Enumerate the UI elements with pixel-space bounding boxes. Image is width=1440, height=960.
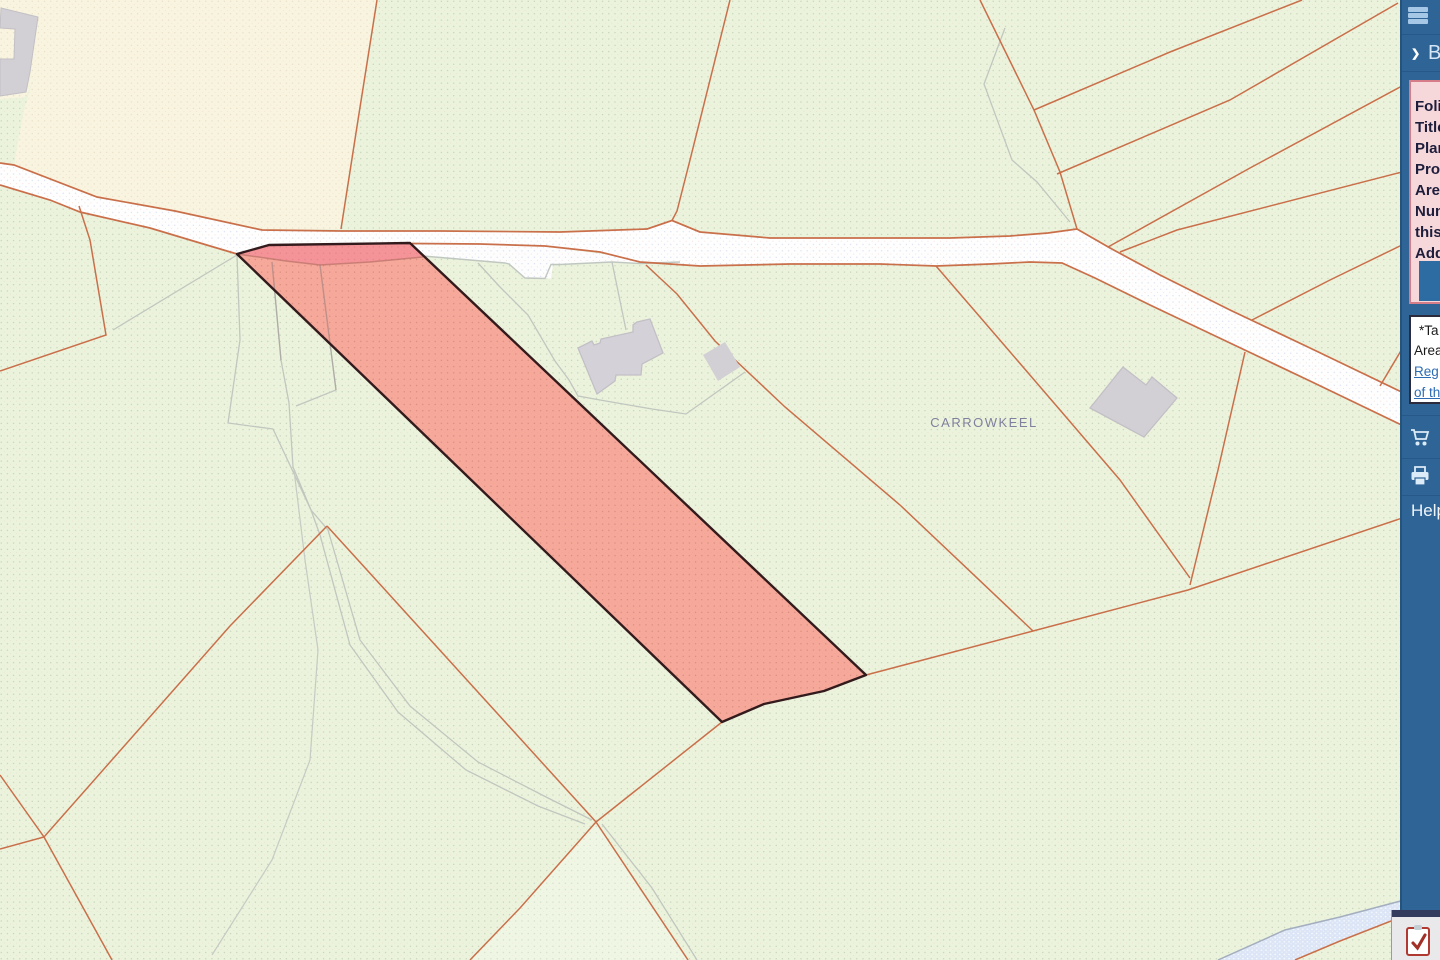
svg-text:CARROWKEEL: CARROWKEEL: [930, 415, 1037, 430]
